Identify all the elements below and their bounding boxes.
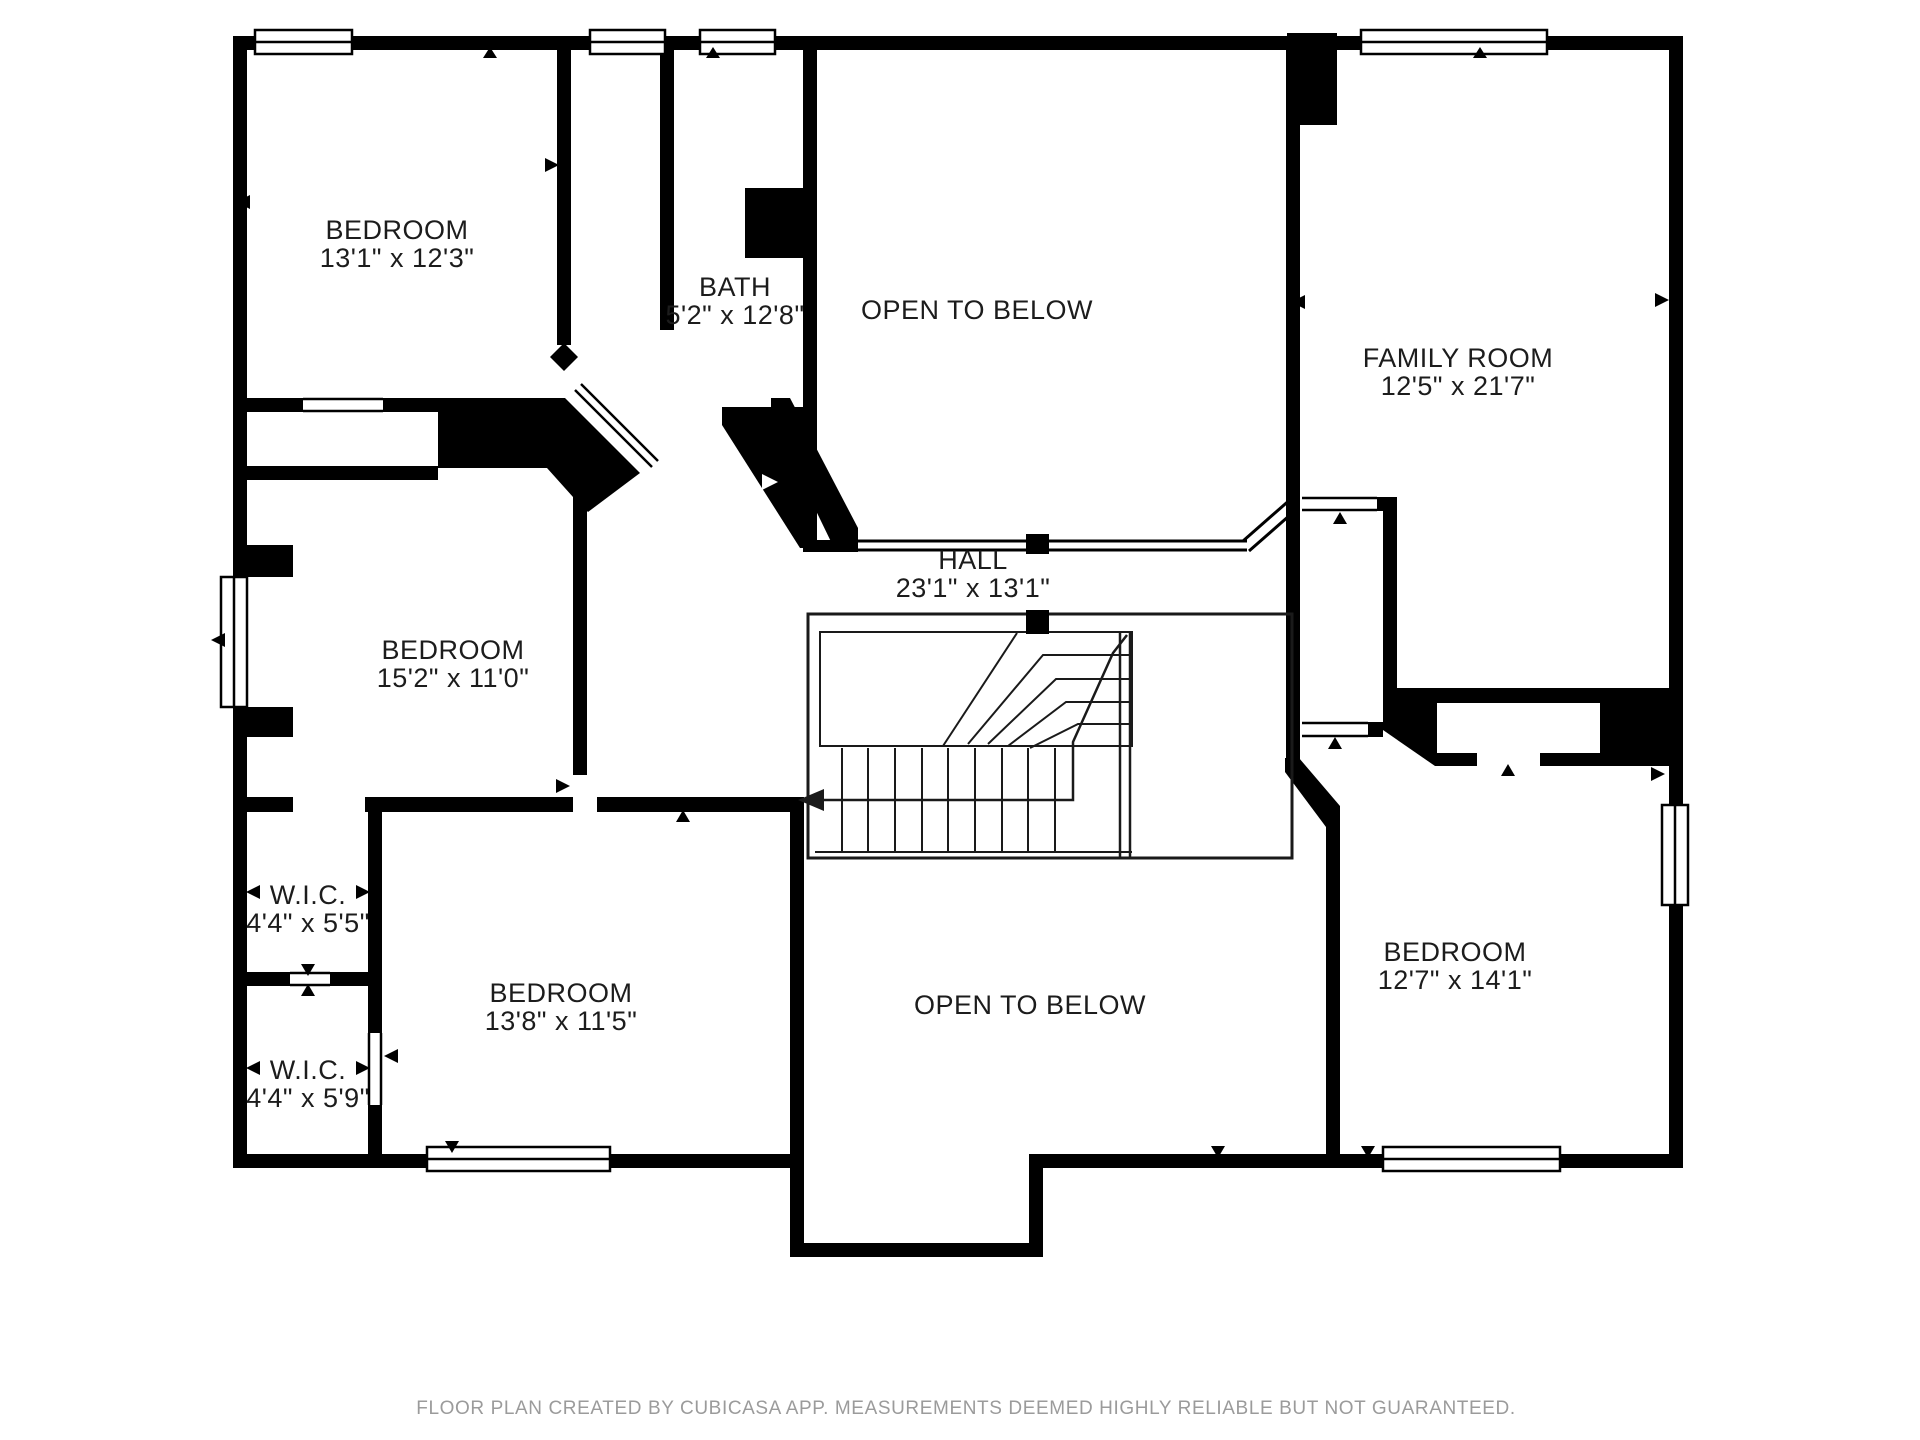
floor-plan-canvas: BEDROOM 13'1" x 12'3" BATH 5'2" x 12'8" … bbox=[0, 0, 1920, 1440]
room-label-bath: BATH 5'2" x 12'8" bbox=[665, 273, 804, 329]
room-dimensions: 4'4" x 5'5" bbox=[246, 908, 370, 938]
room-name: W.I.C. bbox=[270, 880, 347, 910]
room-label-hall: HALL 23'1" x 13'1" bbox=[896, 546, 1051, 602]
arrow-icon bbox=[1655, 293, 1669, 307]
arrow-icon bbox=[545, 158, 559, 172]
arrow-icon bbox=[556, 779, 570, 793]
arrow-icon bbox=[1328, 737, 1342, 749]
window-icon bbox=[1662, 805, 1688, 905]
room-label-bedroom-bottom-left: BEDROOM 13'8" x 11'5" bbox=[485, 979, 638, 1035]
arrow-icon bbox=[384, 1049, 398, 1063]
room-dimensions: 12'7" x 14'1" bbox=[1378, 965, 1533, 995]
room-name: W.I.C. bbox=[270, 1055, 347, 1085]
room-name: HALL bbox=[938, 545, 1008, 575]
room-name: BEDROOM bbox=[489, 978, 632, 1008]
room-dimensions: 15'2" x 11'0" bbox=[377, 663, 530, 693]
floor-plan-drawing bbox=[0, 0, 1920, 1440]
window-icon bbox=[1383, 1147, 1560, 1171]
arrow-icon bbox=[1333, 512, 1347, 524]
window-icon bbox=[1361, 30, 1547, 54]
room-label-open-to-below-bottom: OPEN TO BELOW bbox=[914, 991, 1146, 1019]
room-name: BATH bbox=[699, 272, 771, 302]
room-name: FAMILY ROOM bbox=[1363, 343, 1554, 373]
window-icon bbox=[427, 1147, 610, 1171]
room-label-wic-lower: W.I.C. 4'4" x 5'9" bbox=[246, 1056, 370, 1112]
room-label-bedroom-top-left: BEDROOM 13'1" x 12'3" bbox=[320, 216, 475, 272]
room-name: BEDROOM bbox=[325, 215, 468, 245]
room-label-bedroom-middle-left: BEDROOM 15'2" x 11'0" bbox=[377, 636, 530, 692]
room-dimensions: 12'5" x 21'7" bbox=[1381, 371, 1536, 401]
room-name: OPEN TO BELOW bbox=[914, 990, 1146, 1020]
footer-disclaimer: FLOOR PLAN CREATED BY CUBICASA APP. MEAS… bbox=[416, 1398, 1516, 1420]
arrow-icon bbox=[1651, 767, 1665, 781]
room-name: BEDROOM bbox=[1383, 937, 1526, 967]
stair-walk-arrow-icon bbox=[798, 635, 1127, 811]
room-dimensions: 23'1" x 13'1" bbox=[896, 573, 1051, 603]
room-name: BEDROOM bbox=[381, 635, 524, 665]
room-label-bedroom-bottom-right: BEDROOM 12'7" x 14'1" bbox=[1378, 938, 1533, 994]
room-name: OPEN TO BELOW bbox=[861, 295, 1093, 325]
window-icon bbox=[255, 30, 352, 54]
room-dimensions: 4'4" x 5'9" bbox=[246, 1083, 370, 1113]
railing-lines bbox=[850, 498, 1298, 551]
room-dimensions: 5'2" x 12'8" bbox=[665, 300, 804, 330]
room-dimensions: 13'1" x 12'3" bbox=[320, 243, 475, 273]
room-dimensions: 13'8" x 11'5" bbox=[485, 1006, 638, 1036]
arrow-icon bbox=[211, 633, 225, 647]
room-label-open-to-below-top: OPEN TO BELOW bbox=[861, 296, 1093, 324]
interior-walls bbox=[233, 33, 1397, 1154]
room-label-family-room: FAMILY ROOM 12'5" x 21'7" bbox=[1363, 344, 1554, 400]
room-label-wic-upper: W.I.C. 4'4" x 5'5" bbox=[246, 881, 370, 937]
window-icon bbox=[590, 30, 665, 54]
